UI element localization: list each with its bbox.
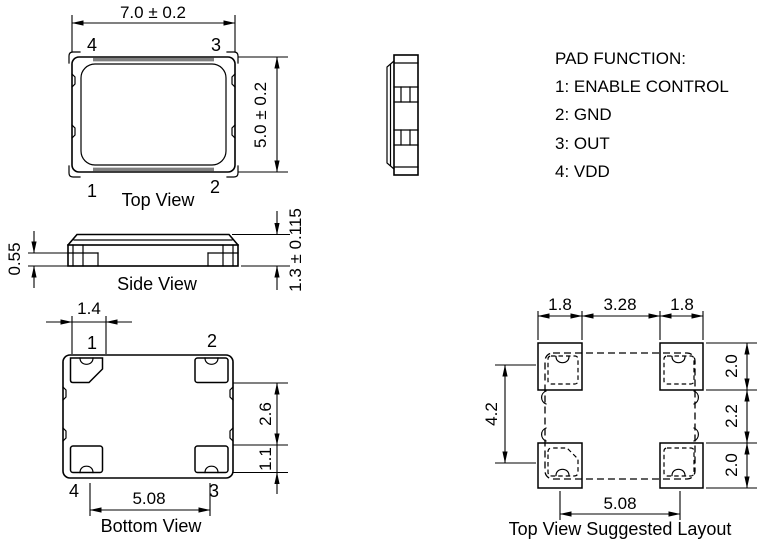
top-view-dim-height: 5.0 ± 0.2 bbox=[238, 57, 288, 172]
pad-function-pin1: 1: ENABLE CONTROL bbox=[555, 77, 729, 96]
bottom-view-pin2-label: 2 bbox=[207, 331, 217, 351]
layout-dim-top: 1.8 3.28 1.8 bbox=[538, 295, 703, 340]
side-view-dim-seat: 0.55 bbox=[5, 231, 68, 288]
pad-function-pin4: 4: VDD bbox=[555, 162, 610, 181]
top-view-pin4-label: 4 bbox=[87, 35, 97, 55]
pad-function-title: PAD FUNCTION: bbox=[555, 49, 686, 68]
end-view bbox=[387, 55, 418, 175]
package-outline-dashed bbox=[545, 353, 695, 479]
bottom-view-dim-right: 2.6 1.1 bbox=[233, 383, 288, 494]
bottom-view-body bbox=[63, 355, 233, 478]
side-view-dim-seat-label: 0.55 bbox=[5, 242, 24, 275]
layout-dim-horizontal-pitch: 5.08 bbox=[560, 491, 680, 520]
layout-dim-vertical-pitch-label: 4.2 bbox=[482, 402, 501, 426]
side-view-title: Side View bbox=[117, 274, 198, 294]
end-view-terminal-upper bbox=[394, 87, 418, 102]
end-view-terminal-lower bbox=[394, 130, 418, 145]
top-view-dim-height-label: 5.0 ± 0.2 bbox=[251, 82, 270, 148]
top-view-pin1-label: 1 bbox=[87, 181, 97, 201]
pad-function-pin2: 2: GND bbox=[555, 105, 612, 124]
bottom-pad-1 bbox=[71, 358, 103, 383]
layout-dim-pad-right-label: 1.8 bbox=[670, 295, 694, 314]
package-lid bbox=[81, 64, 226, 165]
layout-dim-vertical-pitch: 4.2 bbox=[482, 365, 536, 463]
land-pad-top-right bbox=[660, 343, 703, 390]
layout-dim-right: 2.0 2.2 2.0 bbox=[706, 343, 757, 488]
top-view-package-outline bbox=[69, 52, 238, 177]
bottom-view-pin1-label: 1 bbox=[87, 333, 97, 353]
bottom-view-dim-upper-label: 2.6 bbox=[256, 402, 275, 426]
side-view-dim-height: 1.3 ± 0.115 bbox=[232, 208, 305, 292]
pad-function-pin3: 3: OUT bbox=[555, 134, 610, 153]
suggested-layout: 1.8 3.28 1.8 4.2 bbox=[482, 295, 757, 539]
bottom-pad-3 bbox=[195, 446, 228, 473]
end-view-body bbox=[394, 55, 418, 175]
pad-function: PAD FUNCTION: 1: ENABLE CONTROL 2: GND 3… bbox=[555, 49, 729, 181]
bottom-view-dim-pitch-label: 5.08 bbox=[132, 489, 165, 508]
top-view-dim-width-label: 7.0 ± 0.2 bbox=[120, 3, 186, 22]
bottom-pad-2 bbox=[195, 358, 228, 383]
drawing-canvas: 7.0 ± 0.2 4 3 1 2 5.0 ± bbox=[0, 0, 774, 549]
package-body bbox=[72, 57, 235, 172]
top-view-pin2-label: 2 bbox=[210, 177, 220, 197]
bottom-view-title: Bottom View bbox=[101, 516, 203, 536]
bottom-view: 1.4 1 2 2.6 1.1 4 3 bbox=[46, 299, 288, 536]
layout-dim-gap-label: 3.28 bbox=[603, 295, 636, 314]
land-pad-bottom-right bbox=[660, 443, 703, 488]
technical-drawing: 7.0 ± 0.2 4 3 1 2 5.0 ± bbox=[0, 0, 774, 549]
side-view-dim-height-label: 1.3 ± 0.115 bbox=[286, 208, 305, 292]
top-view-title: Top View bbox=[122, 190, 196, 210]
layout-dim-col-top-label: 2.0 bbox=[722, 354, 741, 378]
layout-dim-pad-left-label: 1.8 bbox=[548, 295, 572, 314]
layout-dim-col-bottom-label: 2.0 bbox=[722, 453, 741, 477]
bottom-view-pin4-label: 4 bbox=[69, 481, 79, 501]
suggested-layout-title: Top View Suggested Layout bbox=[509, 519, 732, 539]
bottom-view-dim-lower-label: 1.1 bbox=[256, 447, 275, 471]
layout-dim-horizontal-pitch-label: 5.08 bbox=[603, 494, 636, 513]
side-view: 0.55 1.3 ± 0.115 Side View bbox=[5, 208, 305, 294]
bottom-view-dim-pitch: 5.08 bbox=[90, 483, 210, 516]
layout-dim-col-middle-label: 2.2 bbox=[722, 404, 741, 428]
top-view-pin3-label: 3 bbox=[211, 35, 221, 55]
bottom-pad-4 bbox=[71, 446, 103, 473]
top-view: 7.0 ± 0.2 4 3 1 2 5.0 ± bbox=[69, 3, 288, 210]
bottom-view-dim-pad-width-label: 1.4 bbox=[77, 299, 101, 318]
side-view-body bbox=[68, 245, 238, 266]
